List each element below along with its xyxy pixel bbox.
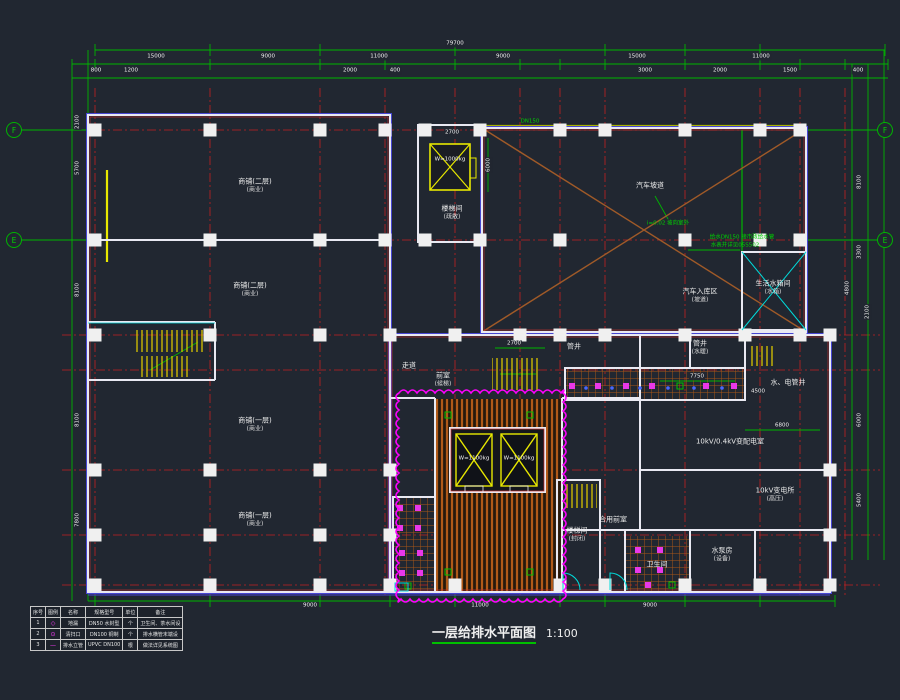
stair-treads (492, 358, 540, 390)
legend-header-cell: 名称 (61, 607, 86, 618)
elevator-top (430, 144, 476, 190)
axis-bubble: F (6, 122, 22, 138)
elevator-core (451, 429, 544, 492)
legend-cell: 个 (123, 629, 138, 640)
legend-header-cell: 规格型号 (86, 607, 123, 618)
legend-cell: 3 (31, 640, 46, 651)
legend-cell: 清扫口 (61, 629, 86, 640)
legend-cell: DN50 水封型 (86, 618, 123, 629)
legend-header-cell: 备注 (138, 607, 183, 618)
cad-floor-plan: 7970015000900011000900015000110008001200… (0, 0, 900, 700)
axis-bubble: E (877, 232, 893, 248)
floor-plan-canvas (0, 0, 900, 700)
legend-cell: 排水立管 (61, 640, 86, 651)
legend-table: 序号图例名称规格型号单位备注1◇地漏DN50 水封型个卫生间、茶水间设2⊙清扫口… (30, 606, 183, 651)
legend-cell: 2 (31, 629, 46, 640)
legend-cell: 1 (31, 618, 46, 629)
title-scale: 1:100 (546, 627, 578, 640)
title-text: 一层给排水平面图 (432, 622, 536, 644)
legend-header-cell: 单位 (123, 607, 138, 618)
legend-cell: 个 (123, 618, 138, 629)
water-tank-cross (742, 252, 806, 330)
legend-cell: DN100 铜制 (86, 629, 123, 640)
stair-treads (748, 346, 776, 366)
legend-row: 1◇地漏DN50 水封型个卫生间、茶水间设 (31, 618, 183, 629)
axis-bubble: F (877, 122, 893, 138)
stair-treads (140, 356, 190, 377)
legend-cell: 地漏 (61, 618, 86, 629)
legend-cell: 根 (123, 640, 138, 651)
axis-bubble: E (6, 232, 22, 248)
legend-cell: 卫生间、茶水间设 (138, 618, 183, 629)
legend-cell: ⊙ (46, 629, 61, 640)
legend-cell: — (46, 640, 61, 651)
legend-cell: 排水横管末端设 (138, 629, 183, 640)
stair-treads (135, 330, 205, 352)
legend-row: 3—排水立管UPVC DN100根做法详见系统图 (31, 640, 183, 651)
legend-cell: 做法详见系统图 (138, 640, 183, 651)
ramp-diagonals (482, 128, 806, 332)
toilet-block-hatch (394, 498, 434, 591)
legend-row: 2⊙清扫口DN100 铜制个排水横管末端设 (31, 629, 183, 640)
drawing-title: 一层给排水平面图 1:100 (432, 622, 578, 644)
legend-cell: ◇ (46, 618, 61, 629)
legend-header-cell: 图例 (46, 607, 61, 618)
legend-cell: UPVC DN100 (86, 640, 123, 651)
legend-header-cell: 序号 (31, 607, 46, 618)
